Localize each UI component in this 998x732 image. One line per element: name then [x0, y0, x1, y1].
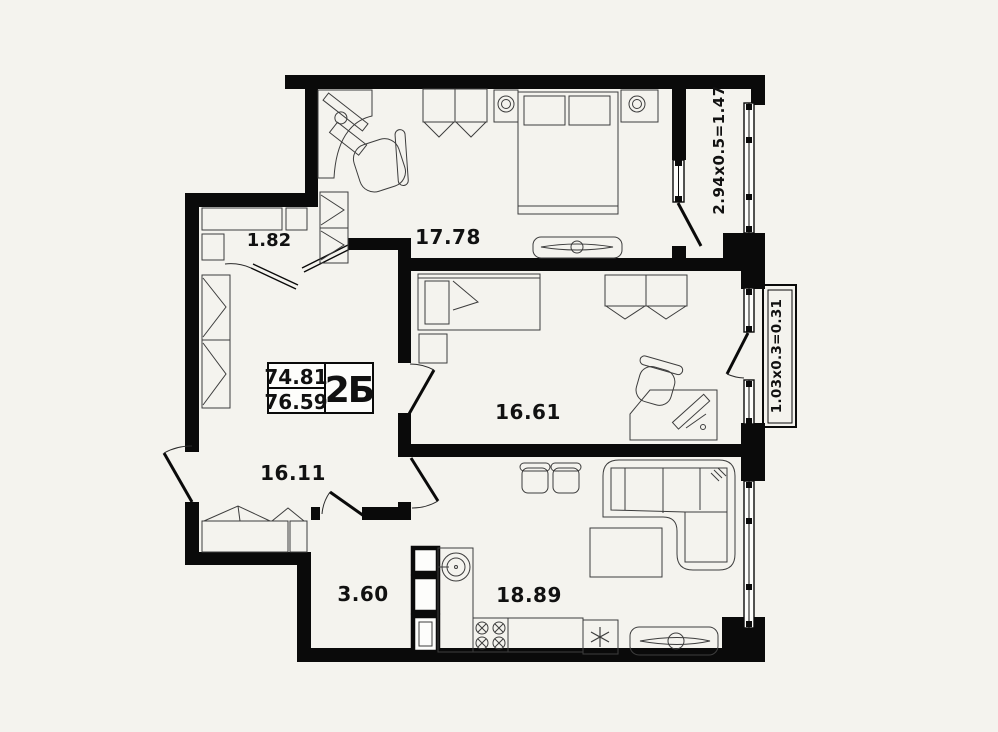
wardrobe-bedroom-top: [423, 89, 487, 137]
entrance-door: [164, 446, 192, 502]
furniture-bedroom2: [418, 274, 717, 440]
duct-shaft: [413, 548, 438, 652]
bedroom-door: [302, 245, 350, 272]
single-bed: [418, 274, 540, 330]
wardrobe-bedroom2: [605, 275, 687, 319]
kitchen-sink: [438, 553, 470, 581]
stove: [473, 618, 508, 652]
snowflake-icon: [591, 627, 609, 647]
nightstand-left: [494, 90, 518, 122]
living-room-window: [744, 481, 754, 628]
floorplan-drawing: 74.81 76.59 2Б 1.82 17.78 16.61 16.11 3.…: [0, 0, 998, 732]
dimension-french-balcony: 1.03x0.3=0.31: [769, 299, 785, 413]
stool: [520, 463, 550, 493]
balcony-door: [678, 203, 701, 246]
furniture-bedroom: [318, 89, 658, 263]
bedroom-balcony-window: [673, 160, 684, 202]
nightstand-bedroom2: [419, 334, 447, 363]
dimension-balcony: 2.94x0.5=1.47: [710, 85, 728, 214]
room-label-kitchen-living: 18.89: [496, 583, 562, 607]
balcony-window: [744, 103, 754, 233]
corner-sofa: [603, 460, 735, 570]
title-block-area-top: 74.81: [264, 365, 327, 389]
nightstand-right: [621, 90, 658, 122]
room-label-bedroom: 17.78: [415, 225, 481, 249]
corner-desk: [318, 90, 372, 178]
double-bed: [518, 92, 618, 214]
desk-chair: [348, 127, 421, 199]
bedroom2-door: [409, 364, 434, 414]
closet-door: [225, 264, 298, 289]
desk-chair-bedroom2: [629, 355, 683, 409]
floorplan-canvas: 74.81 76.59 2Б 1.82 17.78 16.61 16.11 3.…: [0, 0, 998, 732]
desk-bedroom2: [630, 390, 717, 440]
room-label-bathroom: 3.60: [337, 582, 388, 606]
room-label-closet: 1.82: [247, 230, 291, 251]
stool: [551, 463, 581, 493]
french-balcony-windows: [744, 288, 754, 424]
room-label-bedroom2: 16.61: [495, 400, 561, 424]
kitchen-door: [411, 458, 438, 508]
coffee-table: [590, 528, 662, 577]
wardrobe-hall-bottom: [202, 506, 307, 552]
title-block: 74.81 76.59 2Б: [264, 363, 373, 414]
title-block-area-bottom: 76.59: [264, 390, 327, 414]
wardrobe-hall-left: [202, 275, 230, 408]
room-label-hall: 16.11: [260, 461, 326, 485]
tv-stand-bedroom: [533, 237, 622, 258]
title-block-unit-label: 2Б: [325, 370, 374, 411]
furniture-kitchen-living: [413, 460, 735, 655]
french-balcony-door: [727, 333, 748, 378]
bathroom-door: [322, 492, 364, 516]
